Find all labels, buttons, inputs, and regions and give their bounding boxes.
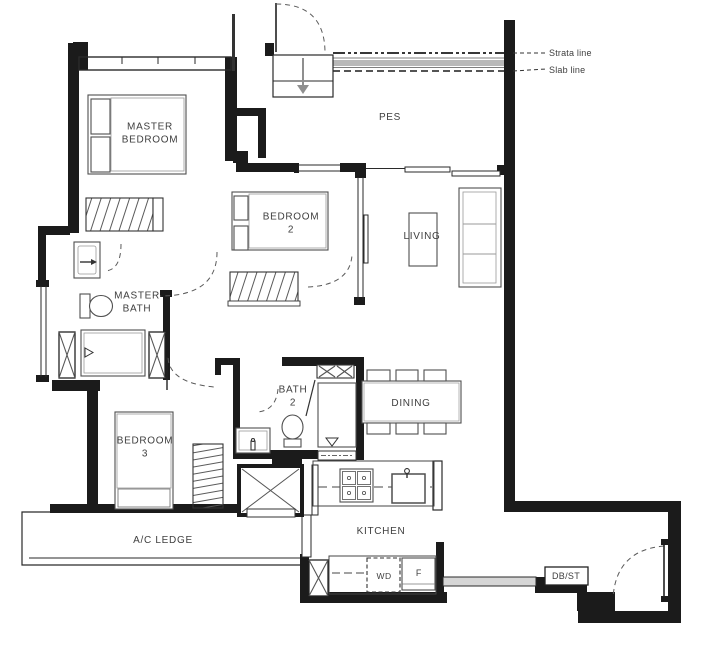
gate-swing-arc — [276, 4, 325, 53]
ac-shaft-right — [149, 332, 165, 378]
bath2-door-arc — [258, 389, 278, 412]
dining-chair — [396, 423, 418, 434]
wardrobe-master — [86, 198, 163, 231]
floor-plan: MASTER BEDROOM PES BEDROOM 2 LIVING MAST… — [0, 0, 704, 648]
master-bath-shower — [81, 330, 145, 376]
floor-plan-drawing — [0, 0, 704, 648]
master-bath-door-arc — [104, 244, 121, 271]
dining-chair — [396, 370, 418, 381]
label-kitchen: KITCHEN — [357, 526, 406, 539]
pillow — [91, 99, 110, 134]
label-bedroom3: BEDROOM 3 — [117, 436, 174, 461]
bedroom3-door-arc — [168, 358, 214, 387]
entry-door-arc — [613, 546, 664, 598]
bedroom3-bed — [115, 412, 173, 509]
label-db-st: DB/ST — [552, 570, 580, 583]
slab-leader-line — [513, 69, 546, 71]
kitchen-sink — [392, 468, 425, 503]
kitchen-shaft — [309, 560, 328, 596]
dining-chair — [424, 370, 446, 381]
bath2-vent-strip — [318, 451, 356, 460]
label-master-bedroom: MASTER BEDROOM — [122, 122, 179, 147]
bedroom2-door-arc — [308, 255, 352, 287]
label-strata-line: Strata line — [549, 47, 592, 60]
label-living: LIVING — [404, 231, 441, 244]
pillow — [91, 137, 110, 172]
entry-steps — [273, 3, 333, 97]
master-bedroom-door-arc — [160, 252, 217, 296]
stove — [340, 469, 373, 502]
label-ac-ledge: A/C LEDGE — [133, 535, 193, 548]
bath2-sink — [236, 428, 270, 453]
household-shelter — [239, 466, 302, 517]
label-bath2: BATH 2 — [279, 385, 308, 410]
dining-chair — [367, 423, 390, 434]
sliding-door-panel — [405, 167, 450, 172]
label-slab-line: Slab line — [549, 64, 585, 77]
bath2-ledge-box — [317, 365, 354, 378]
wardrobe-bedroom3 — [193, 444, 223, 508]
pillow — [234, 196, 248, 220]
label-washer-dryer: WD — [377, 570, 392, 583]
master-bath-sink — [74, 242, 100, 278]
dining-chair — [424, 423, 446, 434]
label-master-bedroom-line2: BEDROOM — [122, 134, 179, 147]
bath2-toilet — [282, 415, 303, 447]
ac-shaft-left — [59, 332, 75, 378]
bath2-shower — [318, 383, 356, 447]
label-bedroom2: BEDROOM 2 — [263, 212, 320, 237]
sliding-door-panel — [452, 171, 500, 176]
dining-chair — [367, 370, 390, 381]
label-master-bedroom-line1: MASTER — [122, 122, 179, 135]
label-dining: DINING — [391, 398, 430, 411]
wardrobe-bedroom2 — [228, 272, 300, 306]
partition-bedroom2-living — [358, 177, 368, 300]
master-bath-toilet — [80, 294, 113, 318]
label-pes: PES — [379, 112, 401, 125]
label-master-bath: MASTER BATH — [114, 291, 160, 316]
pillow — [234, 226, 248, 250]
concrete-band — [333, 60, 504, 66]
label-fridge: F — [416, 567, 422, 580]
sofa — [459, 188, 501, 287]
window-master-bedroom — [79, 57, 231, 70]
